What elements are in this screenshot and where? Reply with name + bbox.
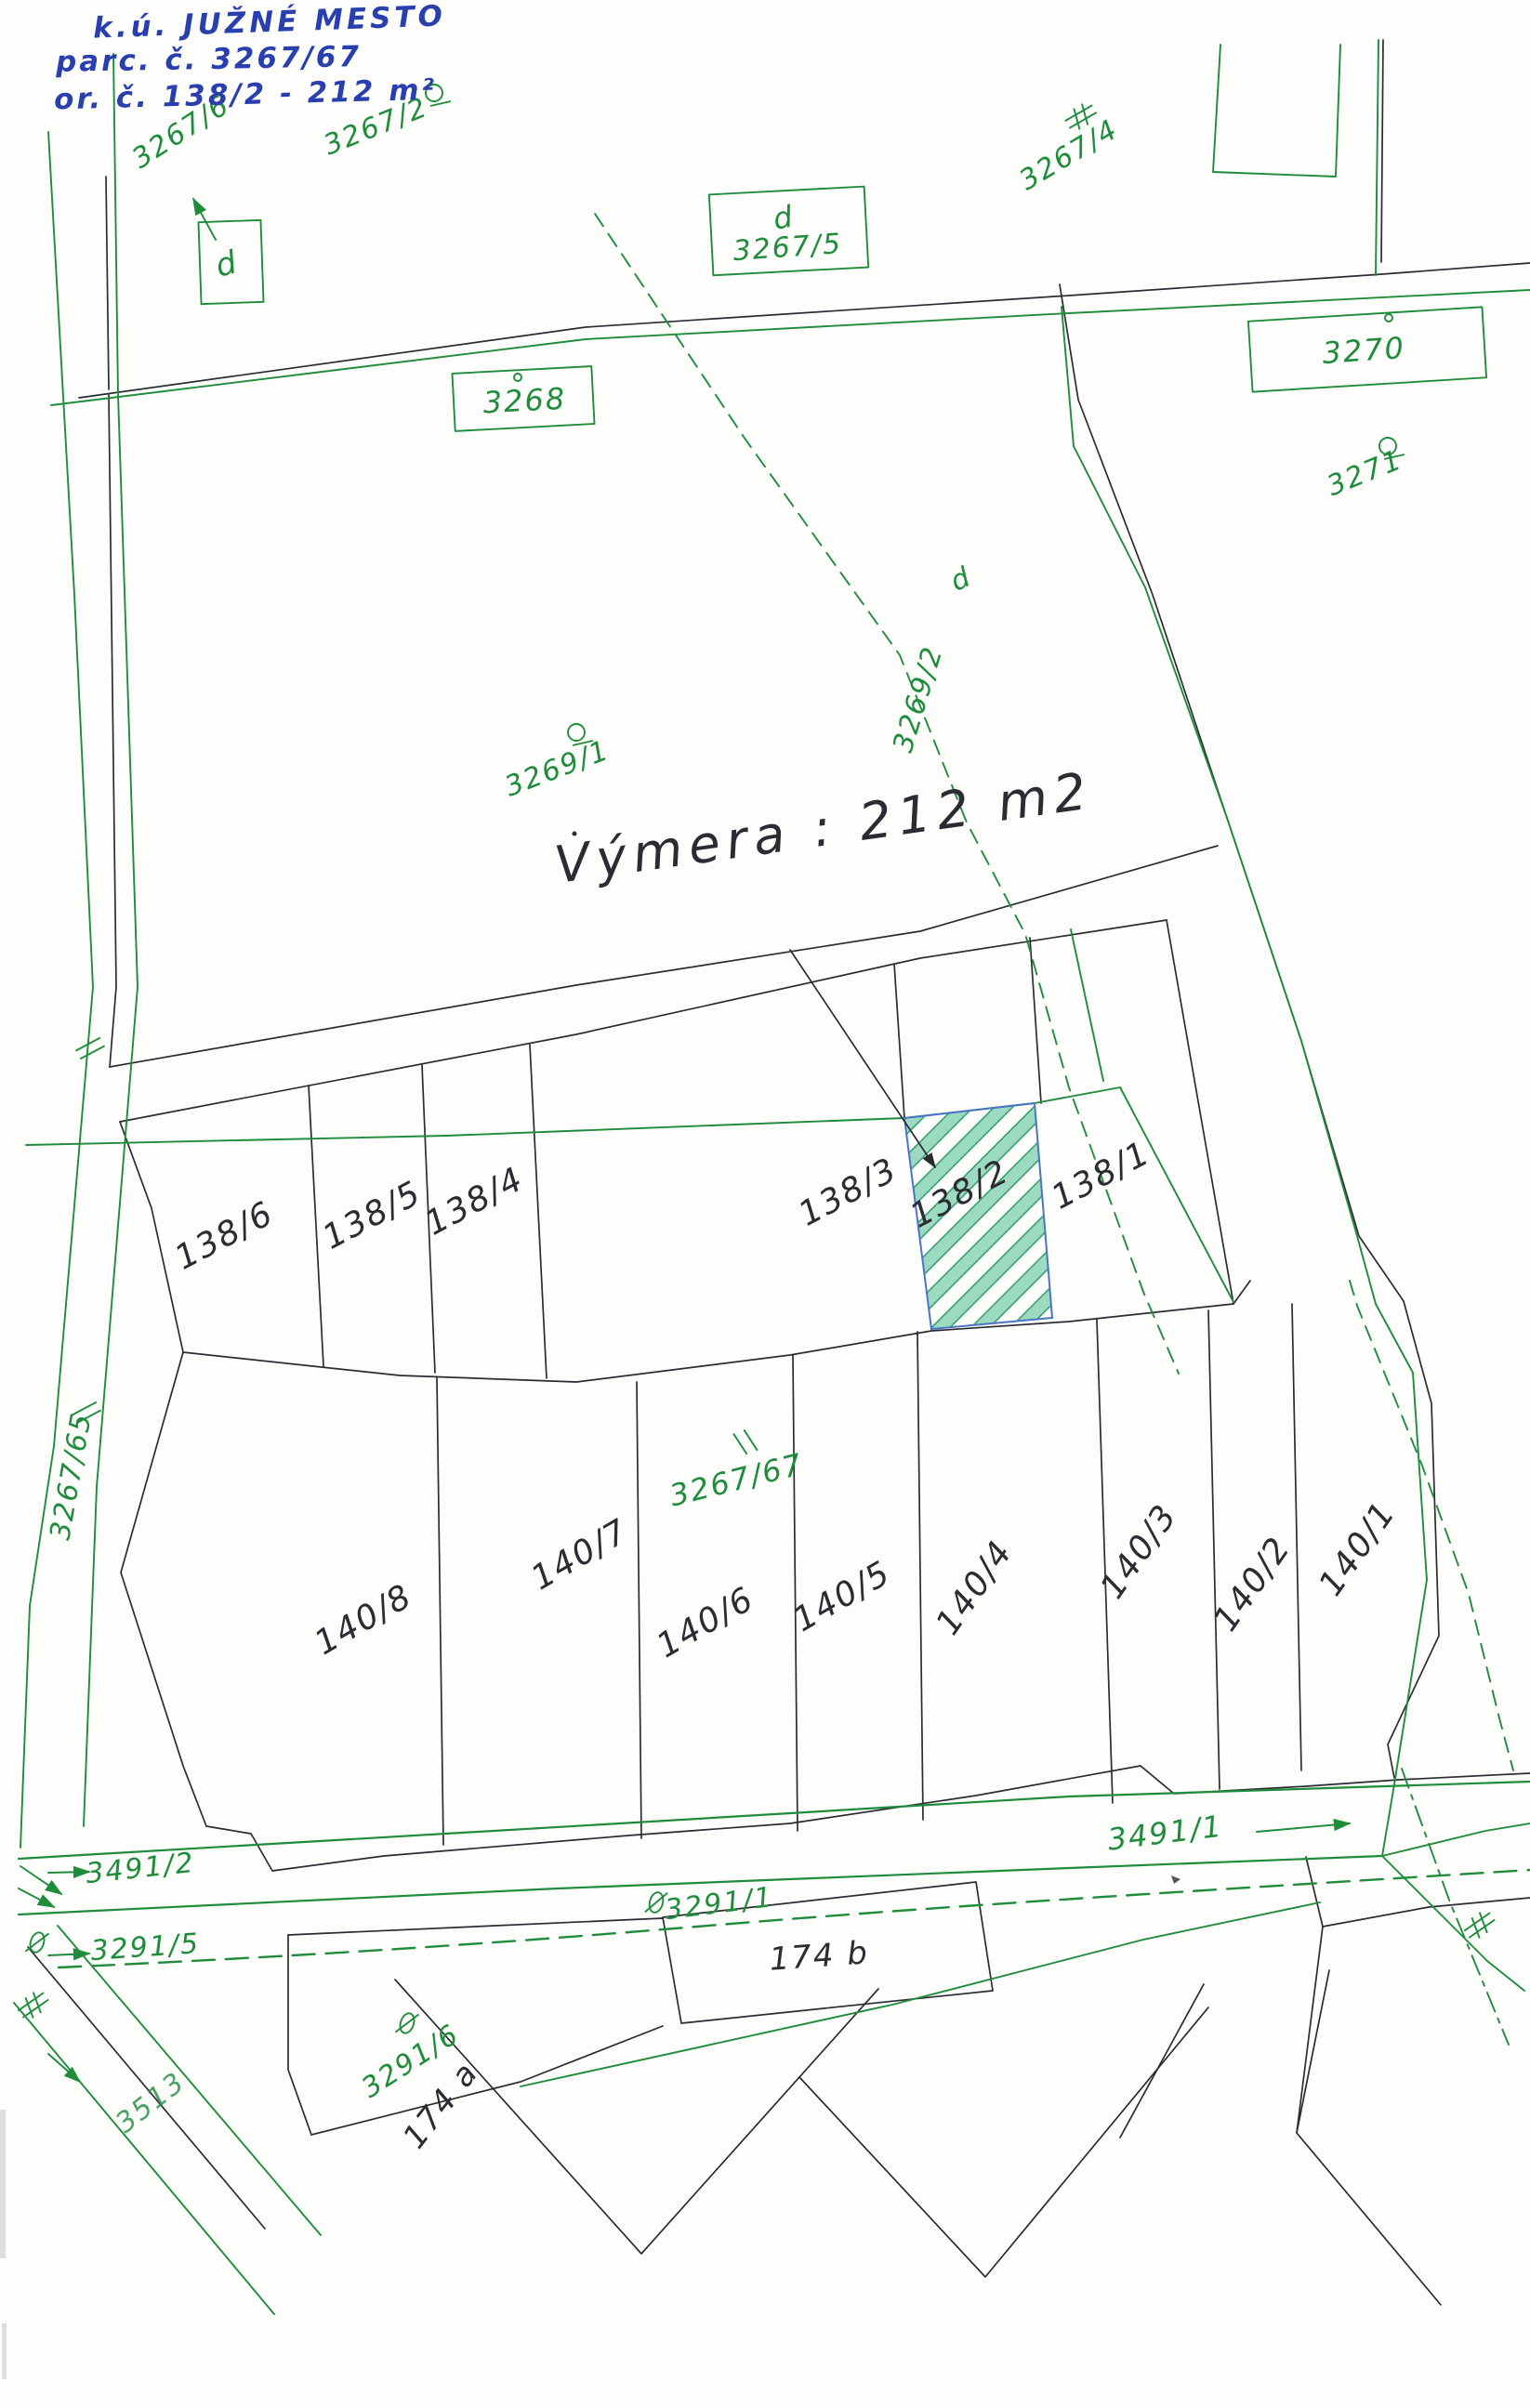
black-labels: 138/6138/5138/4138/3138/2138/1140/8140/7… [169, 1134, 1404, 2155]
parcel-3291-6-west [288, 1935, 311, 2135]
ring-symbol [1385, 314, 1392, 322]
green-low-boundary [521, 1902, 1320, 2086]
divider-hatch-right-upper [1030, 938, 1041, 1103]
divider-138-4-3 [530, 1045, 547, 1378]
arrow-strip-b [19, 1888, 54, 1907]
green-labels: 3267/63267/2dd3267/53267/432683270327132… [44, 88, 1407, 2139]
parcel-label-3513: 3513 [110, 2066, 191, 2140]
parcel-label-138-1: 138/1 [1046, 1134, 1157, 1217]
equals-symbol [75, 1038, 104, 1059]
bottom-left-diag-green-a [14, 2003, 274, 2314]
arrow-3491-1 [1257, 1823, 1350, 1832]
scan-artifact [0, 2110, 6, 2258]
block-west-boundary [120, 1122, 206, 1826]
strip-lower-edge [120, 920, 1167, 1122]
parcel-label-3270: 3270 [1321, 330, 1406, 371]
parcel-label-138-4: 138/4 [419, 1160, 531, 1243]
parcel-label-3267-4: 3267/4 [1014, 113, 1125, 198]
parcel-label-3269-1: 3269/1 [500, 734, 613, 804]
boundary-138-140 [183, 1281, 1250, 1382]
hatch-diag-c [1120, 1984, 1204, 2138]
note-line-2: parc. č. 3267/67 [56, 40, 363, 79]
parcel-label-138-5: 138/5 [317, 1174, 429, 1257]
parcel-138-1-east-edge [1167, 920, 1233, 1304]
vertical-pair-green [1376, 40, 1378, 275]
green-segment-138-1 [1071, 929, 1103, 1081]
parcel-label-140-1: 140/1 [1312, 1494, 1404, 1603]
strip-3267-65-east [84, 54, 138, 1826]
road-fork-down [1382, 1856, 1524, 1991]
hash-symbol [14, 1987, 52, 2022]
divider-hatch-left-upper [894, 964, 904, 1118]
divider-140-3-2 [1208, 1310, 1220, 1789]
parcel-label-140-3: 140/3 [1093, 1497, 1185, 1606]
block-140-bottom [206, 1766, 1530, 1871]
top-left-vertical-black [106, 177, 109, 389]
parcel-label-140-8: 140/8 [309, 1577, 419, 1663]
scanned-cadastral-map: 3267/63267/2dd3267/53267/432683270327132… [0, 0, 1530, 2408]
parcel-label-3267-65: 3267/65 [44, 1410, 99, 1543]
road-fork-up [1382, 1823, 1530, 1856]
arrow-3267-6 [193, 199, 216, 240]
scan-artifact [2, 2323, 7, 2379]
dashdot-bottom-right [1402, 1769, 1509, 2045]
arrow-3513 [48, 2054, 80, 2082]
parcel-label-138-6: 138/6 [169, 1194, 281, 1278]
parcel-label-d: d [212, 243, 243, 285]
parcel-3291-6-top [288, 1918, 663, 1935]
parallel-symbol [733, 1428, 758, 1456]
hash-symbol [1460, 1907, 1498, 1942]
arrow-strip-a [20, 1866, 61, 1894]
top-right-u-shape [1213, 45, 1340, 177]
divider-140-5-4 [917, 1332, 923, 1820]
ring-symbol [514, 374, 521, 381]
arrow-vymera [790, 950, 935, 1167]
parcel-label-140-5: 140/5 [787, 1554, 898, 1639]
parcel-label-3267-5: 3267/5 [732, 228, 843, 268]
divider-140-7-6 [637, 1382, 641, 1838]
parcel-label-3267-67: 3267/67 [666, 1446, 807, 1513]
divider-140-8-7 [437, 1378, 443, 1845]
parcel-label-174-b: 174 b [768, 1934, 870, 1978]
road-top-green [19, 1782, 1530, 1859]
vymera-annotation: Výmera : 212 m2 [551, 760, 1097, 895]
speck-symbol [1171, 1875, 1180, 1884]
parcel-label-140-2: 140/2 [1207, 1530, 1299, 1638]
parcel-label-3291-1: 3291/1 [663, 1881, 775, 1927]
parcel-label-138-3: 138/3 [793, 1151, 904, 1234]
corner-parcel-right [1297, 1857, 1323, 2133]
strip-3267-65-west [20, 132, 93, 1848]
hatch-zigzag-b [799, 2007, 1208, 2277]
parcel-label-3491-1: 3491/1 [1106, 1809, 1225, 1858]
top-road-black [79, 263, 1530, 398]
hatch-zigzag-a [395, 1980, 878, 2254]
map-symbols [14, 85, 1498, 2037]
parcel-3269-1-west-edge [109, 395, 116, 1067]
parcel-label-3291-5: 3291/5 [89, 1928, 201, 1967]
parcel-label-140-4: 140/4 [929, 1533, 1021, 1642]
divider-140-6-5 [793, 1355, 798, 1831]
parcel-label-3271: 3271 [1323, 443, 1407, 503]
corner-parcel-right-top [1323, 1898, 1530, 1927]
parcel-label-d: d [945, 560, 977, 599]
vertical-pair-black [1381, 40, 1383, 262]
theta-symbol [395, 2009, 418, 2037]
theta-symbol [25, 1928, 48, 1956]
parcel-label-3269-2: 3269/2 [887, 642, 950, 757]
divider-140-2-1 [1292, 1304, 1301, 1770]
map-drawing: 3267/63267/2dd3267/53267/432683270327132… [0, 0, 1530, 2408]
bottom-left-diag-green-b [58, 1926, 321, 2235]
parcel-label-140-7: 140/7 [525, 1512, 636, 1598]
hatch-diag-d [1297, 1970, 1441, 2305]
parcel-label-3268: 3268 [482, 381, 567, 421]
arrow-3491-2 [48, 1872, 89, 1873]
parcel-label-140-6: 140/6 [651, 1580, 761, 1665]
